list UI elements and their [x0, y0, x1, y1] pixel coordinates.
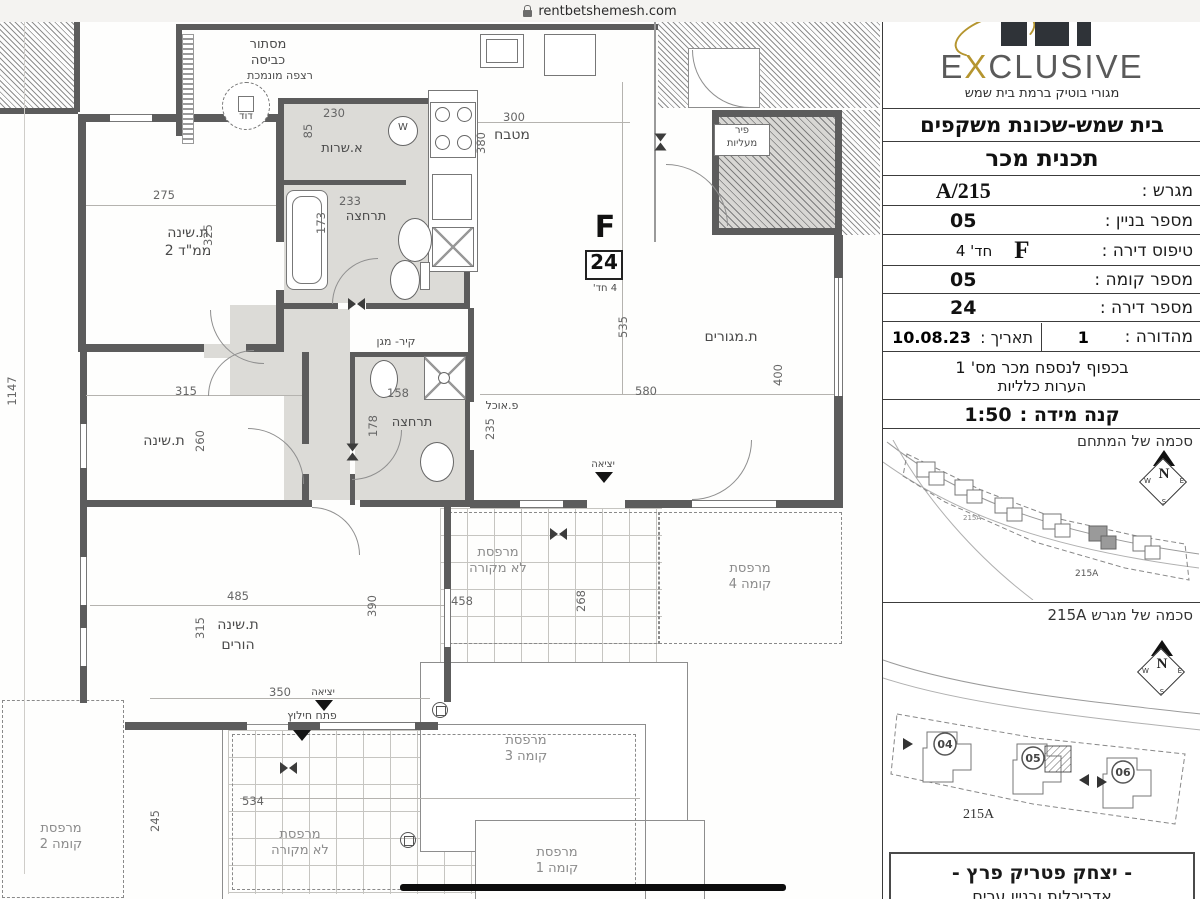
balcony-divider [658, 512, 660, 644]
svg-text:06: 06 [1115, 766, 1131, 779]
room-label-service: א.שרות [312, 142, 372, 156]
survey-mark-icon [432, 702, 448, 718]
dimension-label: 233 [328, 194, 372, 208]
exit-label: יציאה [300, 688, 346, 699]
browser-top-bar: rentbetshemesh.com [0, 0, 1200, 23]
burner-icon [457, 135, 472, 150]
room-label-laundry: כביסה [232, 54, 304, 68]
wall-segment [74, 22, 80, 112]
exit-arrow-icon [595, 472, 613, 483]
dimension-label: 535 [616, 305, 630, 349]
dimension-label: 173 [314, 201, 328, 245]
wall-segment [284, 180, 406, 185]
dimension-label: 260 [193, 419, 207, 463]
scale-row: קנה מידה : 1:50 [883, 401, 1200, 429]
field-row-apt-type: טיפוס דירה : F חד' 4 [883, 236, 1200, 266]
dimension-label: 458 [440, 594, 484, 608]
dimension-label: 1147 [5, 369, 19, 413]
wall-segment [176, 24, 306, 30]
fridge [544, 34, 596, 76]
dimension-label: 315 [164, 384, 208, 398]
valve-icon [280, 762, 297, 774]
edition-value: 1 [1042, 328, 1125, 347]
bathroom-sink [398, 218, 432, 262]
wall-segment [278, 98, 284, 184]
wall-segment [302, 352, 309, 444]
valve-icon [550, 528, 567, 540]
survey-mark-icon [400, 832, 416, 848]
unit-number-label: 24 [585, 252, 623, 273]
window-symbol [110, 114, 152, 122]
hatch-zone [842, 110, 880, 235]
balcony-label: קומה 3 [490, 750, 562, 764]
wall-segment [80, 500, 312, 507]
room-label-mamad: ממ"ד 2 [146, 244, 230, 259]
window-symbol [80, 557, 87, 605]
plot-label: מגרש : [1044, 181, 1200, 201]
wall-segment [835, 110, 842, 235]
scale-bar [400, 884, 786, 891]
exit-arrow-icon [293, 730, 311, 741]
wall-segment [125, 722, 247, 730]
unit-letter-label: F [583, 212, 627, 244]
date-label: תאריך : [980, 328, 1041, 347]
wall-segment [776, 500, 843, 508]
dimension-label: 315 [193, 606, 207, 650]
notes-row: בכפוף לנספח מכר מס' 1 הערות כלליות [883, 353, 1200, 400]
valve-icon [347, 444, 359, 461]
dimension-line [86, 205, 276, 206]
plan-type-title: תכנית מכר [883, 143, 1200, 176]
dimension-label: 178 [366, 404, 380, 448]
building-label: מספר בניין : [1044, 211, 1200, 231]
window-symbol [520, 500, 563, 508]
burner-icon [457, 107, 472, 122]
logo-letter-block [1035, 22, 1069, 46]
elevator-label: פיר [718, 126, 766, 137]
balcony-floor2-outline [2, 700, 124, 898]
kitchen-sink2 [432, 174, 472, 220]
wall-segment [563, 500, 587, 508]
apt-type-label: טיפוס דירה : [1044, 241, 1200, 261]
logo-letter-block [1001, 22, 1027, 46]
dimension-label: 485 [216, 589, 260, 603]
toilet-tank [420, 262, 430, 290]
stove-icon [430, 102, 476, 158]
dishwasher [432, 227, 474, 267]
balcony-label: לא מקורה [262, 844, 338, 858]
plan-info-panel: EXCLUSIVE מגורי בוטיק ברמת בית שמש בית ש… [882, 22, 1200, 899]
agency-logo: EXCLUSIVE מגורי בוטיק ברמת בית שמש [883, 22, 1200, 108]
toilet-icon [390, 260, 420, 300]
dimension-label: 85 [301, 109, 315, 153]
wall-segment [78, 114, 110, 122]
dimension-label: 325 [201, 213, 215, 257]
washer-label: W [390, 123, 416, 134]
lock-icon [523, 10, 532, 17]
apt-num-label: מספר דירה : [1044, 298, 1200, 318]
shelter-wall-label: קיר- מגן [358, 336, 434, 348]
plot-value: 215/A [883, 178, 1044, 204]
valve-icon [655, 134, 667, 151]
wall-segment [78, 114, 86, 352]
door-arc [312, 507, 360, 555]
compass-icon: NW ES [1141, 450, 1187, 508]
dimension-label: 268 [574, 579, 588, 623]
door-arc [692, 440, 752, 500]
dimension-line [90, 605, 450, 606]
architect-stamp-box: - יצחק פטריק פרץ - אדריכלות ובניין ערים [889, 852, 1195, 899]
architect-name: - יצחק פטריק פרץ - [891, 862, 1193, 884]
wall-segment [470, 500, 522, 508]
wall-segment [468, 308, 474, 402]
dimension-label: 235 [483, 407, 497, 451]
svg-text:215A: 215A [1075, 569, 1099, 579]
wall-segment [300, 24, 658, 30]
logo-tagline: מגורי בוטיק ברמת בית שמש [883, 86, 1200, 101]
window-symbol [692, 500, 776, 508]
wall-segment [366, 303, 470, 309]
dimension-label: 534 [231, 794, 275, 808]
site2-label: סכמה של מגרש 215A [882, 602, 1200, 624]
room-label-parents: הורים [194, 638, 282, 653]
dimension-label: 275 [142, 188, 186, 202]
apt-type-value: F [1014, 237, 1029, 265]
balcony-label: קומה 4 [708, 578, 792, 592]
elevator-label: מעליות [718, 139, 766, 150]
hatch-zone [0, 22, 74, 108]
svg-text:05: 05 [1025, 752, 1040, 765]
valve-icon [348, 298, 365, 310]
notes-line2: הערות כלליות [998, 377, 1087, 395]
burner-icon [435, 135, 450, 150]
room-label-parents: ת.שינה [194, 618, 282, 633]
logo-letter-block [1077, 22, 1091, 46]
floor-value: 05 [883, 269, 1044, 291]
partition-line [654, 22, 656, 242]
laundry-rail-icon [182, 34, 194, 144]
room-label-bath2: תרחצה [382, 416, 442, 430]
field-row-floor: מספר קומה : 05 [883, 267, 1200, 294]
field-row-building: מספר בניין : 05 [883, 207, 1200, 235]
exit-label: יציאה [580, 460, 626, 471]
wall-segment [360, 500, 470, 507]
balcony-label: מרפסת [24, 822, 98, 836]
svg-text:04: 04 [937, 738, 953, 751]
room-label-kitchen: מטבח [482, 128, 542, 143]
dimension-label: 580 [624, 384, 668, 398]
balcony-label: קומה 2 [24, 838, 98, 852]
balcony-label: מרפסת [520, 846, 594, 860]
window-symbol [320, 722, 415, 730]
floor-label: מספר קומה : [1044, 270, 1200, 290]
edition-label: מהדורה : [1125, 327, 1200, 347]
kitchen-sink-inner [486, 39, 518, 63]
balcony-label: מרפסת [462, 546, 534, 560]
project-title: בית שמש-שכונת משקפים [883, 108, 1200, 142]
dimension-line [240, 798, 640, 799]
wall-segment [276, 290, 284, 352]
room-label-laundry: מסתור [232, 38, 304, 52]
date-cell: תאריך : 10.08.23 [883, 328, 1041, 347]
room-label-living: ת.מגורים [676, 330, 786, 345]
window-symbol [80, 628, 87, 666]
boiler-inner [238, 96, 254, 112]
wall-segment [80, 352, 87, 424]
window-symbol [80, 424, 87, 468]
logo-gold-x: X [964, 48, 988, 85]
wall-segment [468, 450, 474, 504]
screenshot-root: rentbetshemesh.com מסתורכביסהרצפה מונמכת… [0, 0, 1200, 899]
logo-exclusive-text: EXCLUSIVE [883, 48, 1200, 86]
rescue-label: פתח חילוץ [268, 710, 356, 722]
boiler-label: דוד [226, 112, 266, 123]
svg-text:215A: 215A [963, 807, 995, 822]
notes-line1: בכפוף לנספח מכר מס' 1 [955, 358, 1128, 377]
dimension-label: 400 [771, 353, 785, 397]
shower-drain [438, 372, 450, 384]
wall-segment [625, 500, 692, 508]
wall-segment [0, 108, 78, 114]
svg-text:215A: 215A [963, 514, 981, 522]
floor-plan-drawing: מסתורכביסהרצפה מונמכתדודא.שרותתרחצהמטבחת… [0, 22, 882, 899]
dimension-label: 245 [148, 799, 162, 843]
field-row-apt-num: מספר דירה : 24 [883, 295, 1200, 322]
sheet-edge-line [24, 22, 25, 874]
building-value: 05 [883, 210, 1044, 232]
room-label-bath: תרחצה [336, 210, 396, 224]
field-row-edition-date: מהדורה : 1 תאריך : 10.08.23 [883, 323, 1200, 352]
dimension-label: 300 [492, 110, 536, 124]
compass-icon: NW ES [1139, 640, 1185, 698]
wall-segment [284, 303, 338, 309]
burner-icon [435, 107, 450, 122]
dimension-label: 350 [258, 685, 302, 699]
apt-num-value: 24 [883, 297, 1044, 319]
balcony-label: קומה 1 [520, 862, 594, 876]
architect-title: אדריכלות ובניין ערים [891, 887, 1193, 899]
scale-value: 1:50 [964, 404, 1011, 426]
dimension-label: 158 [376, 386, 420, 400]
balcony-label: מרפסת [262, 828, 338, 842]
balcony-label: מרפסת [708, 562, 792, 576]
wall-segment [712, 228, 842, 235]
balcony-label: לא מקורה [462, 562, 534, 576]
lowered-floor-label: רצפה מונמכת [238, 70, 322, 82]
edition-cell: מהדורה : 1 [1041, 323, 1200, 351]
scale-label: קנה מידה : [1020, 404, 1120, 426]
date-value: 10.08.23 [883, 328, 980, 347]
dimension-label: 380 [474, 121, 488, 165]
room-label-bedroom: ת.שינה [128, 434, 200, 449]
wall-segment [444, 647, 451, 702]
unit-rooms-label: 4 חד' [578, 284, 632, 295]
field-row-plot: מגרש : 215/A [883, 177, 1200, 206]
room-label-mamad: ת.שינה [146, 226, 230, 241]
balcony-label: מרפסת [490, 734, 562, 748]
window-symbol [834, 278, 843, 396]
bathroom-sink [420, 442, 454, 482]
wall-segment [78, 344, 204, 352]
dimension-label: 390 [365, 584, 379, 628]
dimension-label: 230 [312, 106, 356, 120]
apt-rooms-value: חד' 4 [956, 242, 992, 260]
wall-segment [444, 507, 451, 589]
wall-segment [712, 110, 842, 117]
address-bar-url[interactable]: rentbetshemesh.com [538, 4, 676, 19]
wall-segment [80, 507, 87, 703]
